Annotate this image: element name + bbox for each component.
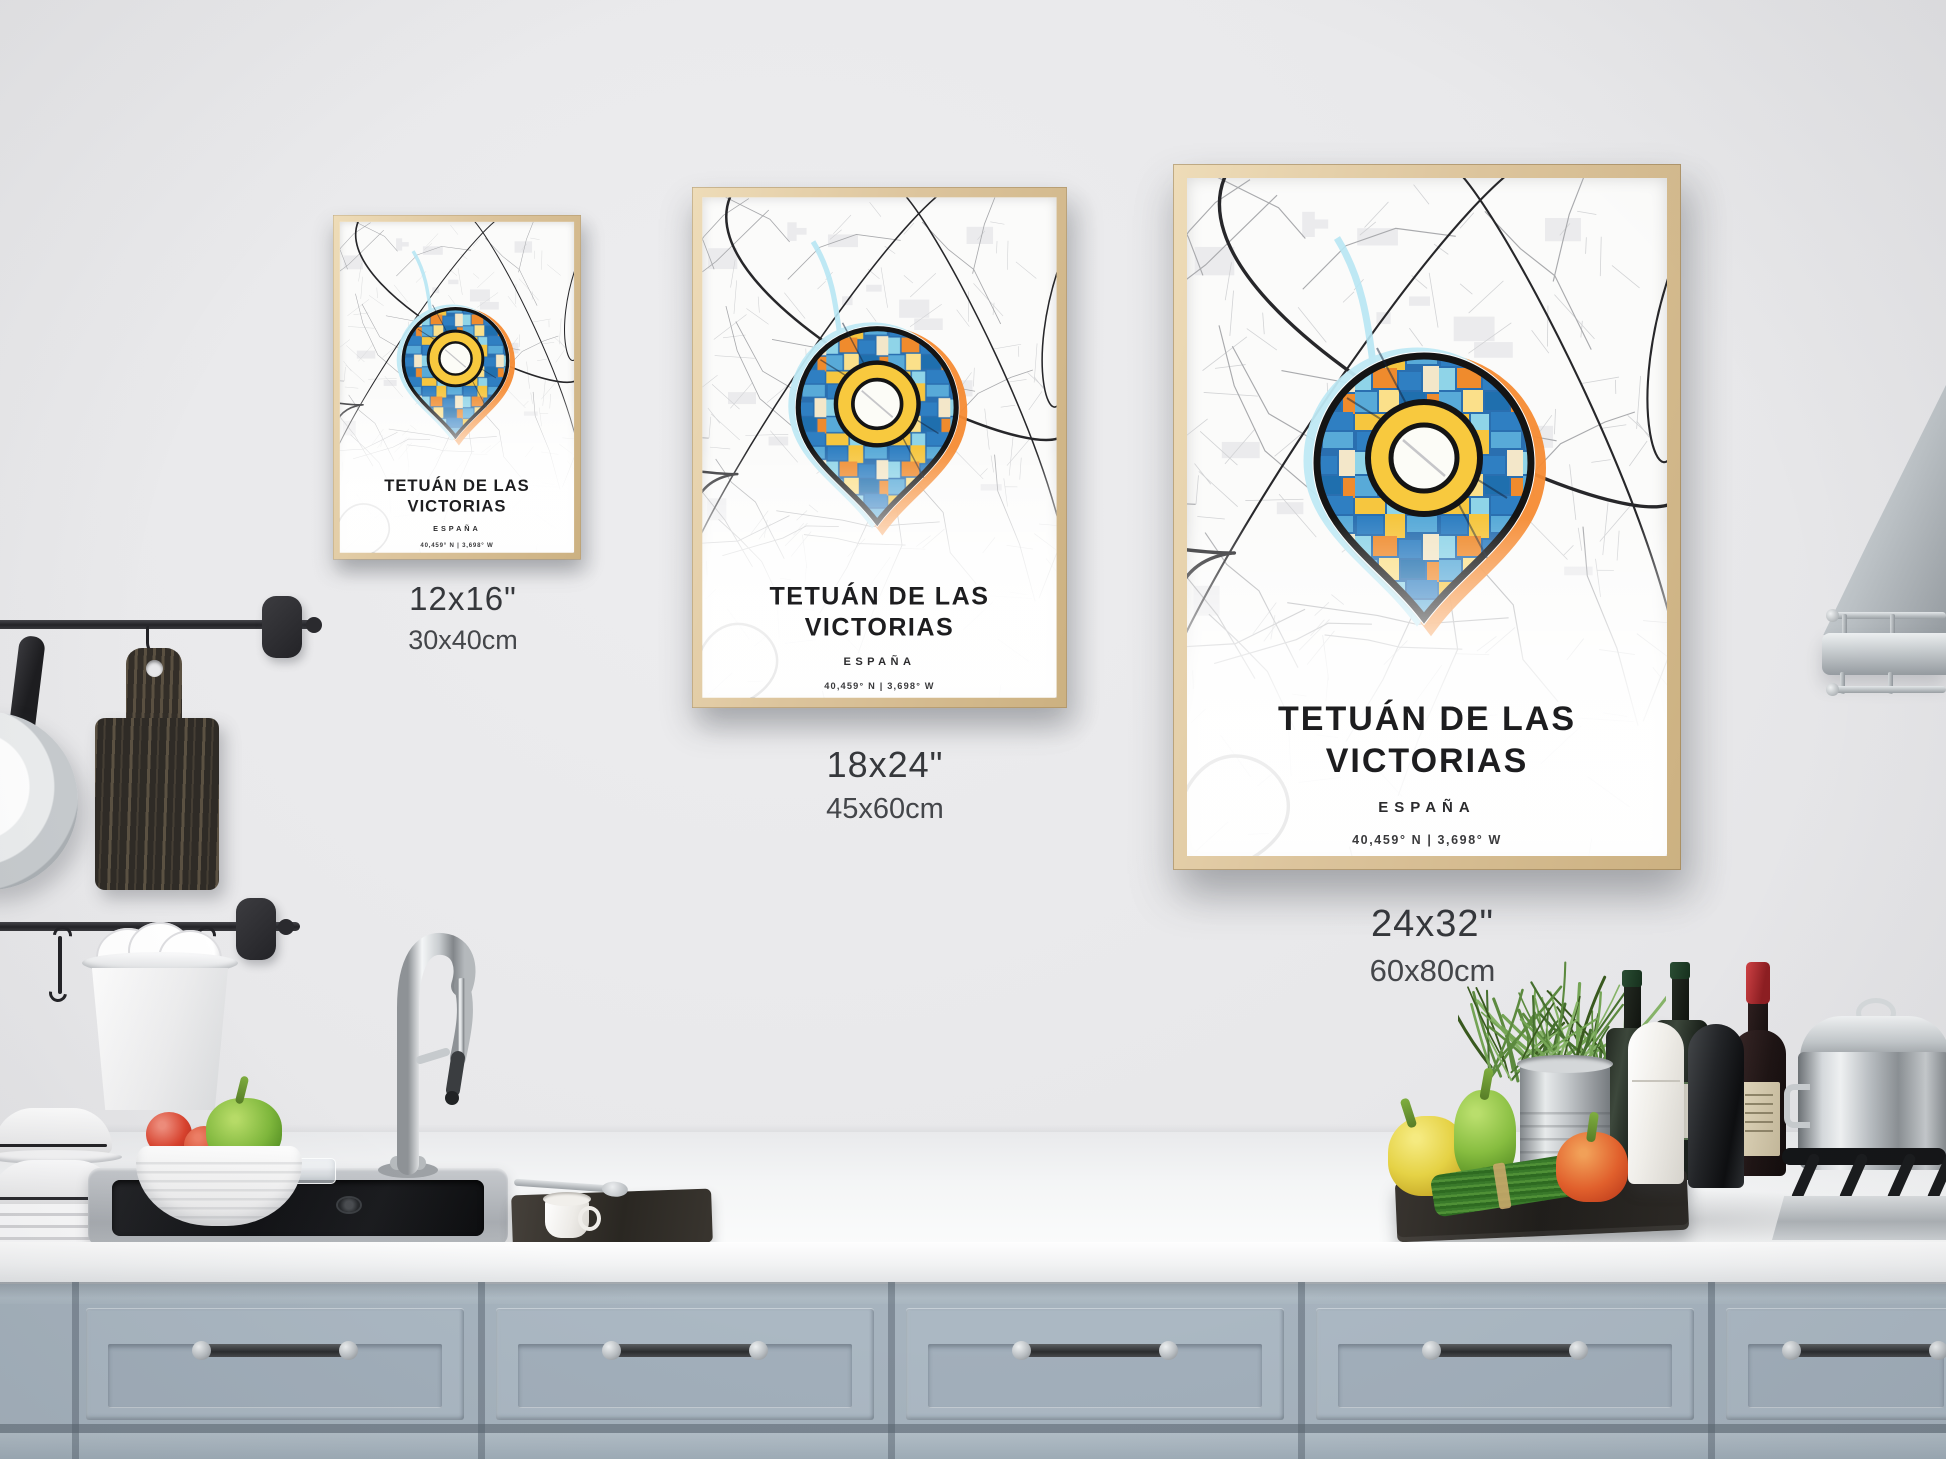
cabinet-drawer	[1726, 1308, 1946, 1420]
red-bell-pepper	[1556, 1132, 1628, 1202]
map-poster: TETUÁN DE LASVICTORIAS ESPAÑA 40,459° N …	[333, 215, 581, 560]
size-inches: 12x16"	[333, 580, 593, 618]
espresso-cup	[545, 1198, 589, 1238]
map-poster: TETUÁN DE LASVICTORIAS ESPAÑA 40,459° N …	[692, 187, 1067, 708]
cabinet-seam	[1708, 1282, 1715, 1459]
salt-grinder	[1628, 1022, 1684, 1184]
cabinet-seam	[888, 1282, 895, 1459]
drawer-handle	[200, 1344, 350, 1357]
rail-finial	[278, 919, 294, 935]
poster-title-line1: TETUÁN DE LAS	[384, 477, 529, 496]
wine-bottle-cap	[1746, 962, 1770, 1004]
map-poster: TETUÁN DE LASVICTORIAS ESPAÑA 40,459° N …	[1173, 164, 1681, 870]
serving-slate	[511, 1189, 713, 1250]
poster-mount-large: TETUÁN DE LASVICTORIAS ESPAÑA 40,459° N …	[1173, 164, 1681, 870]
utensil-bucket	[86, 968, 234, 1110]
drawer-handle	[1790, 1344, 1940, 1357]
stacked-bowl	[0, 1108, 112, 1154]
cabinet-drawer	[906, 1308, 1284, 1420]
poster-print: TETUÁN DE LASVICTORIAS ESPAÑA 40,459° N …	[1187, 178, 1667, 856]
poster-title: TETUÁN DE LASVICTORIAS	[1187, 698, 1667, 782]
poster-caption: TETUÁN DE LASVICTORIAS ESPAÑA 40,459° N …	[1187, 698, 1667, 856]
range-hood-rail-top	[1832, 612, 1946, 619]
poster-coordinates: 40,459° N | 3,698° W	[340, 542, 574, 549]
poster-coordinates: 40,459° N | 3,698° W	[1187, 833, 1667, 847]
poster-country: ESPAÑA	[702, 656, 1056, 669]
oil-bottle-cap	[1670, 962, 1690, 979]
poster-print: TETUÁN DE LASVICTORIAS ESPAÑA 40,459° N …	[702, 197, 1056, 697]
cabinet-seam	[1298, 1282, 1305, 1459]
cabinet-seam	[478, 1282, 485, 1459]
pot-side-handle	[1784, 1084, 1810, 1128]
cabinet-bottom-panel	[0, 1433, 1946, 1459]
size-inches: 18x24"	[745, 744, 1025, 786]
poster-coordinates: 40,459° N | 3,698° W	[702, 681, 1056, 691]
cabinet-drawer	[1316, 1308, 1694, 1420]
rail-mount	[262, 596, 302, 658]
cabinet-seam	[72, 1282, 79, 1459]
drawer-handle	[1020, 1344, 1170, 1357]
cutting-board-hole	[146, 660, 163, 677]
poster-title: TETUÁN DE LASVICTORIAS	[340, 476, 574, 517]
cabinet-drawer	[86, 1308, 464, 1420]
poster-mount-small: TETUÁN DE LASVICTORIAS ESPAÑA 40,459° N …	[333, 215, 581, 560]
drawer-handle	[610, 1344, 760, 1357]
poster-title-line2: VICTORIAS	[408, 497, 507, 516]
size-cm: 45x60cm	[745, 793, 1025, 826]
poster-print: TETUÁN DE LASVICTORIAS ESPAÑA 40,459° N …	[340, 222, 574, 553]
poster-caption: TETUÁN DE LASVICTORIAS ESPAÑA 40,459° N …	[340, 476, 574, 553]
hob-base	[1772, 1196, 1946, 1240]
counter-front-edge	[0, 1242, 1946, 1284]
hanging-cutting-board	[95, 718, 219, 890]
size-cm: 30x40cm	[333, 625, 593, 656]
poster-title: TETUÁN DE LASVICTORIAS	[702, 581, 1056, 643]
range-hood-rail-knob	[1826, 683, 1839, 696]
range-hood-rail-bottom	[1832, 686, 1946, 693]
cabinet-seam-row	[0, 1424, 1946, 1433]
counter-overhang-shadow	[0, 1282, 1946, 1298]
kitchen-faucet	[352, 908, 502, 1178]
pepper-grinder	[1688, 1024, 1744, 1188]
kitchen-product-mockup: TETUÁN DE LASVICTORIAS ESPAÑA 40,459° N …	[0, 0, 1946, 1459]
s-hook-icon	[58, 936, 62, 994]
wine-bottle-label	[1738, 1082, 1780, 1156]
size-label-small: 12x16" 30x40cm	[333, 580, 593, 656]
poster-title-line2: VICTORIAS	[1326, 742, 1529, 780]
poster-title-line1: TETUÁN DE LAS	[769, 583, 989, 611]
oil-bottle-neck	[1624, 984, 1641, 1032]
poster-caption: TETUÁN DE LASVICTORIAS ESPAÑA 40,459° N …	[702, 581, 1056, 698]
poster-title-line2: VICTORIAS	[805, 614, 954, 642]
poster-mount-medium: TETUÁN DE LASVICTORIAS ESPAÑA 40,459° N …	[692, 187, 1067, 708]
poster-title-line1: TETUÁN DE LAS	[1278, 700, 1576, 738]
oil-bottle-neck	[1672, 976, 1689, 1024]
rail-finial	[306, 617, 322, 633]
oil-bottle-cap	[1622, 970, 1642, 987]
range-hood-rail-knob	[1826, 609, 1839, 622]
poster-country: ESPAÑA	[1187, 799, 1667, 816]
size-label-medium: 18x24" 45x60cm	[745, 744, 1025, 826]
cabinet-drawer	[496, 1308, 874, 1420]
drawer-handle	[1430, 1344, 1580, 1357]
rail-mount	[236, 898, 276, 960]
poster-country: ESPAÑA	[340, 525, 574, 533]
range-hood-body	[1822, 633, 1946, 675]
sink-drain	[338, 1198, 360, 1212]
